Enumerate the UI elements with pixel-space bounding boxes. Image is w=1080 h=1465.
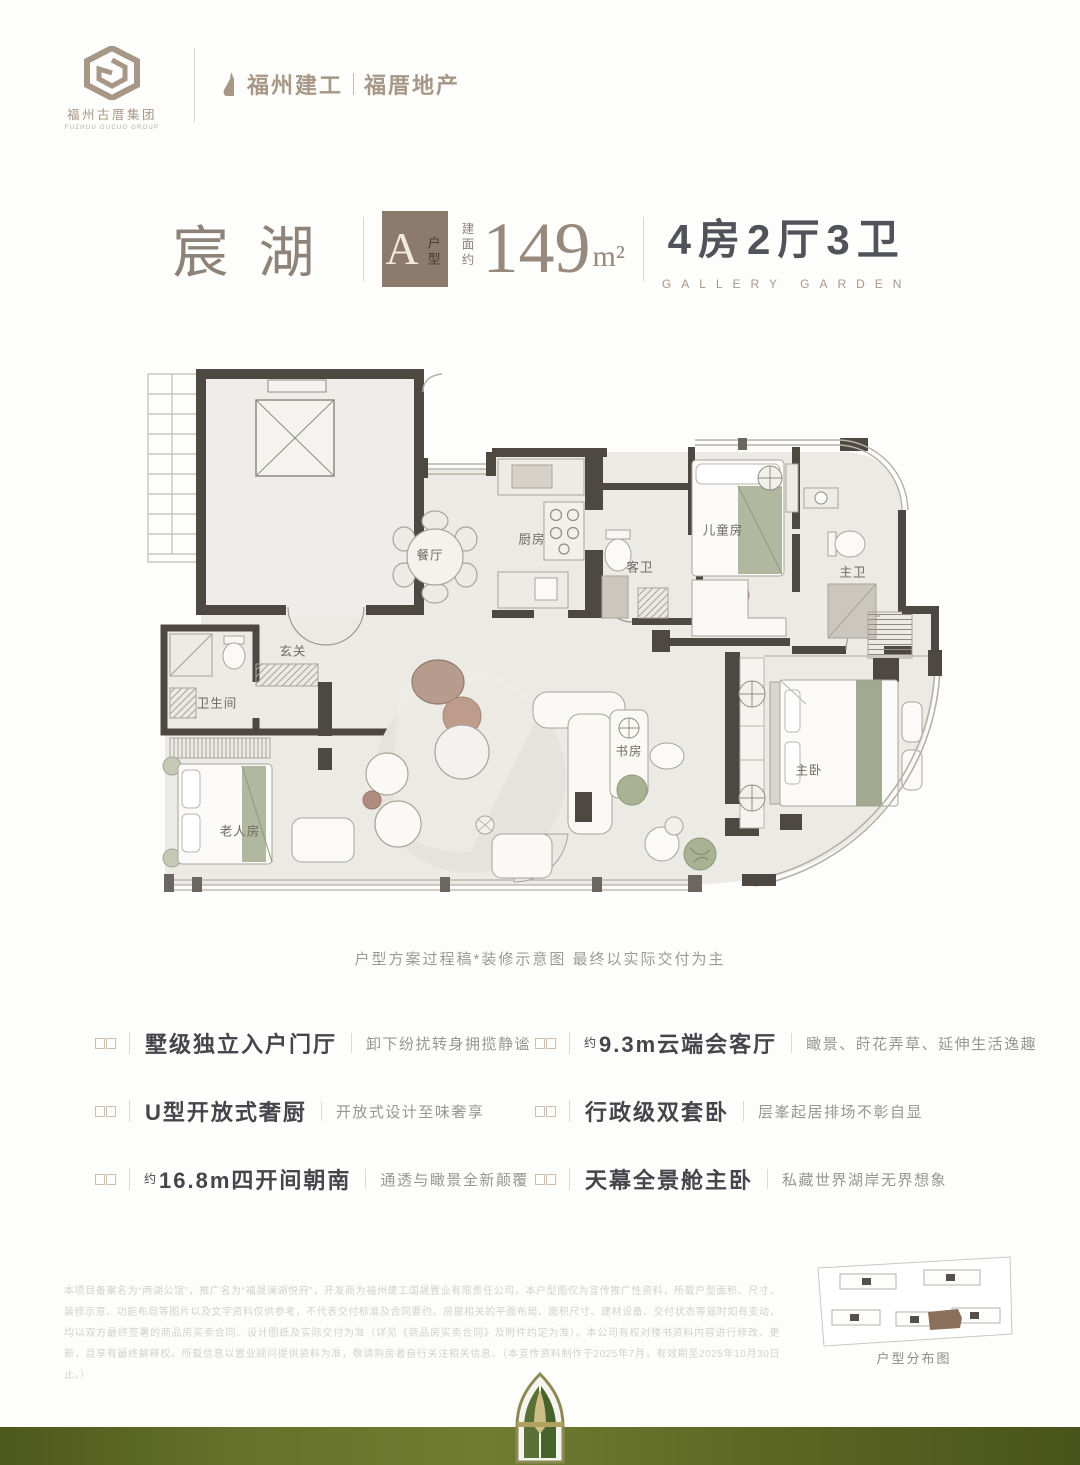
feature-item: 天幕全景舱主卧 私藏世界湖岸无界想象: [535, 1160, 1005, 1198]
project-name: 宸湖: [169, 208, 345, 289]
feature-desc: 层峯起居排场不彰自显: [758, 1101, 923, 1122]
feature-title: 行政级双套卧: [584, 1095, 729, 1127]
room-label-kitchen: 厨房: [518, 529, 545, 548]
group-logo: 福州古厝集团 FUZHOU GUCUO GROUP: [52, 46, 172, 131]
seal-icon: [95, 1038, 117, 1048]
feature-item: 约9.3m云端会客厅 瞰景、莳花弄草、延伸生活逸趣: [535, 1024, 1005, 1062]
floor-plan: 餐厅 厨房 客卫 儿童房 主卫 玄关 卫生间 老人房 书房 主卧: [140, 352, 950, 930]
unit-suffix: 户型: [424, 236, 443, 268]
seal-icon: [535, 1174, 557, 1184]
room-label-bathroom: 卫生间: [197, 693, 238, 712]
feature-title: 约9.3m云端会客厅: [584, 1027, 777, 1059]
site-map: [812, 1252, 1016, 1353]
feature-item: U型开放式奢厨 开放式设计至味奢享: [95, 1092, 495, 1130]
partner-divider: [353, 73, 354, 95]
area-figure: 149 m²: [483, 214, 625, 282]
title-bar: 宸湖 A 户型 建面约 149 m² 4房2厅3卫 GALLERY GARDEN: [0, 206, 1080, 291]
highlighted-building: [928, 1309, 962, 1330]
title-divider: [643, 217, 644, 281]
room-label-master-bath: 主卫: [839, 562, 866, 581]
approx-mark: 约: [144, 1172, 158, 1186]
logo-divider: [194, 48, 195, 122]
brand-header: 福州古厝集团 FUZHOU GUCUO GROUP 福州建工 福厝地产: [52, 46, 460, 131]
partner-left-name: 福州建工: [247, 68, 343, 100]
hexagon-g-logo-icon: [83, 46, 141, 100]
partner-logos: 福州建工 福厝地产: [221, 68, 460, 100]
seal-icon: [95, 1106, 117, 1116]
feature-title: 天幕全景舱主卧: [584, 1163, 753, 1195]
area-unit: m²: [593, 240, 625, 274]
feature-divider: [767, 1169, 768, 1189]
feature-divider: [569, 1168, 570, 1190]
feature-desc: 私藏世界湖岸无界想象: [782, 1169, 947, 1190]
area-value: 149: [483, 214, 591, 282]
approx-mark: 约: [584, 1036, 598, 1050]
room-label-dining: 餐厅: [416, 545, 443, 564]
layout-en: GALLERY GARDEN: [662, 277, 912, 291]
disclaimer-text: 本项目备案名为“两湖公馆”，推广名为“福晟澜湖悦府”，开发商为福州建工国晟置业有…: [64, 1281, 780, 1386]
group-name: 福州古厝集团: [67, 104, 157, 123]
feature-divider: [791, 1033, 792, 1053]
seal-icon: [535, 1106, 557, 1116]
room-label-elder-room: 老人房: [220, 821, 261, 840]
layout-block: 4房2厅3卫 GALLERY GARDEN: [662, 206, 912, 291]
feature-list: 墅级独立入户门厅 卸下纷扰转身拥揽静谧 约9.3m云端会客厅 瞰景、莳花弄草、延…: [95, 1024, 1005, 1198]
plan-caption: 户型方案过程稿*装修示意图 最终以实际交付为主: [0, 948, 1080, 969]
feature-divider: [743, 1101, 744, 1121]
seal-icon: [535, 1038, 557, 1048]
feature-divider: [129, 1168, 130, 1190]
feature-title: 约16.8m四开间朝南: [144, 1163, 351, 1195]
seal-icon: [95, 1174, 117, 1184]
feature-divider: [569, 1100, 570, 1122]
room-label-foyer: 玄关: [279, 641, 306, 660]
title-divider: [363, 217, 364, 281]
gate-emblem-icon: [510, 1372, 570, 1464]
feature-divider: [321, 1101, 322, 1121]
floor-plan-drawing: [140, 352, 950, 930]
building-icon: [221, 71, 241, 97]
feature-divider: [129, 1032, 130, 1054]
feature-divider: [129, 1100, 130, 1122]
site-map-drawing: [812, 1252, 1016, 1348]
feature-divider: [365, 1169, 366, 1189]
group-name-en: FUZHOU GUCUO GROUP: [65, 125, 159, 131]
feature-title: 墅级独立入户门厅: [144, 1027, 337, 1059]
feature-item: 约16.8m四开间朝南 通透与瞰景全新颠覆: [95, 1160, 495, 1198]
feature-desc: 瞰景、莳花弄草、延伸生活逸趣: [806, 1033, 1037, 1054]
feature-item: 墅级独立入户门厅 卸下纷扰转身拥揽静谧: [95, 1024, 495, 1062]
feature-title: U型开放式奢厨: [144, 1095, 307, 1127]
feature-divider: [351, 1033, 352, 1053]
feature-desc: 开放式设计至味奢享: [336, 1101, 485, 1122]
site-map-caption: 户型分布图: [812, 1348, 1016, 1367]
feature-divider: [569, 1032, 570, 1054]
room-label-master-bedroom: 主卧: [795, 760, 822, 779]
room-label-kids-room: 儿童房: [703, 520, 744, 539]
area-prefix: 建面约: [458, 222, 477, 280]
room-label-guest-bath: 客卫: [626, 557, 653, 576]
feature-item: 行政级双套卧 层峯起居排场不彰自显: [535, 1092, 1005, 1130]
feature-desc: 卸下纷扰转身拥揽静谧: [366, 1033, 531, 1054]
room-label-study: 书房: [615, 741, 642, 760]
feature-desc: 通透与瞰景全新颠覆: [380, 1169, 529, 1190]
unit-type-badge: A 户型: [382, 211, 448, 287]
partner-right-name: 福厝地产: [364, 68, 460, 100]
unit-letter: A: [385, 226, 418, 272]
layout-summary: 4房2厅3卫: [668, 206, 906, 267]
